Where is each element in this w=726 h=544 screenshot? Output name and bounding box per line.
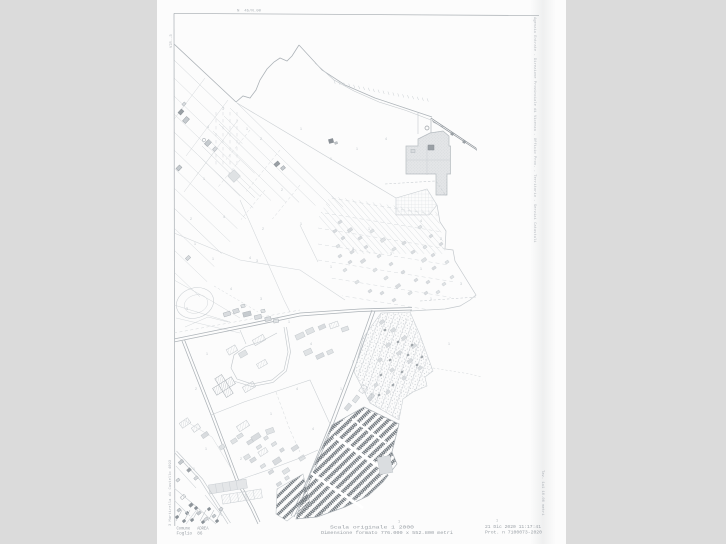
svg-text:1: 1 [360,437,362,441]
svg-text:1: 1 [194,242,196,246]
svg-text:2: 2 [260,137,262,141]
svg-text:2: 2 [262,227,264,231]
svg-text:2: 2 [190,217,192,221]
svg-text:4: 4 [207,125,209,129]
svg-text:1: 1 [212,257,214,261]
svg-text:1: 1 [352,360,354,364]
svg-text:3: 3 [260,297,262,301]
svg-text:4: 4 [249,256,251,260]
svg-text:3: 3 [460,282,462,286]
svg-text:1: 1 [300,127,302,131]
svg-text:3: 3 [186,307,188,311]
svg-text:1: 1 [288,320,290,324]
svg-text:1: 1 [206,352,208,356]
svg-text:21 Dic 2020 11:17:41: 21 Dic 2020 11:17:41 [485,524,541,530]
svg-text:2: 2 [195,387,197,391]
svg-text:1: 1 [340,387,342,391]
svg-text:Foglio 86: Foglio 86 [177,532,203,537]
svg-text:1: 1 [448,342,450,346]
svg-text:1: 1 [356,147,358,151]
svg-text:VIR.-3: VIR.-3 [170,34,174,48]
svg-text:1: 1 [496,520,498,524]
svg-text:3: 3 [256,259,258,263]
svg-text:1: 1 [246,127,248,131]
svg-text:4: 4 [310,342,312,346]
svg-text:1: 1 [270,412,272,416]
svg-text:3: 3 [222,107,224,111]
svg-text:Prot. n 7100073-2020: Prot. n 7100073-2020 [485,530,542,536]
svg-text:1: 1 [368,227,370,231]
svg-text:4: 4 [230,287,232,291]
svg-text:2: 2 [240,457,242,461]
svg-text:1: 1 [326,477,328,481]
svg-text:1: 1 [330,265,332,269]
svg-text:1: 1 [430,297,432,301]
svg-text:1: 1 [420,267,422,271]
svg-text:4: 4 [296,387,298,391]
svg-text:4: 4 [385,137,387,141]
svg-text:4: 4 [223,215,225,219]
svg-text:1: 1 [193,467,195,471]
svg-text:2: 2 [281,188,283,192]
svg-text:Agenzia Entrate - Direzione Pr: Agenzia Entrate - Direzione Provinciale … [532,17,537,243]
svg-text:3: 3 [390,252,392,256]
svg-text:1: 1 [203,177,205,181]
svg-text:4: 4 [420,219,422,223]
svg-text:2: 2 [440,237,442,241]
svg-text:4: 4 [312,427,314,431]
svg-text:Scala originale 1 2000: Scala originale 1 2000 [330,525,414,531]
svg-text:Tav. 1a1 10.00 metri: Tav. 1a1 10.00 metri [540,470,545,516]
svg-text:1: 1 [330,157,332,161]
svg-text:1: 1 [205,447,207,451]
svg-text:Dimensione formato 776.000 x: Dimensione formato 776.000 x 552.800 met… [321,530,453,536]
svg-text:4: 4 [352,247,354,251]
svg-text:1: 1 [398,521,400,525]
svg-text:2: 2 [300,497,302,501]
svg-text:N 45/N.00: N 45/N.00 [237,9,262,14]
svg-text:3 Martirella di Castello 4893: 3 Martirella di Castello 4893 [168,459,173,526]
svg-text:1: 1 [300,222,302,226]
